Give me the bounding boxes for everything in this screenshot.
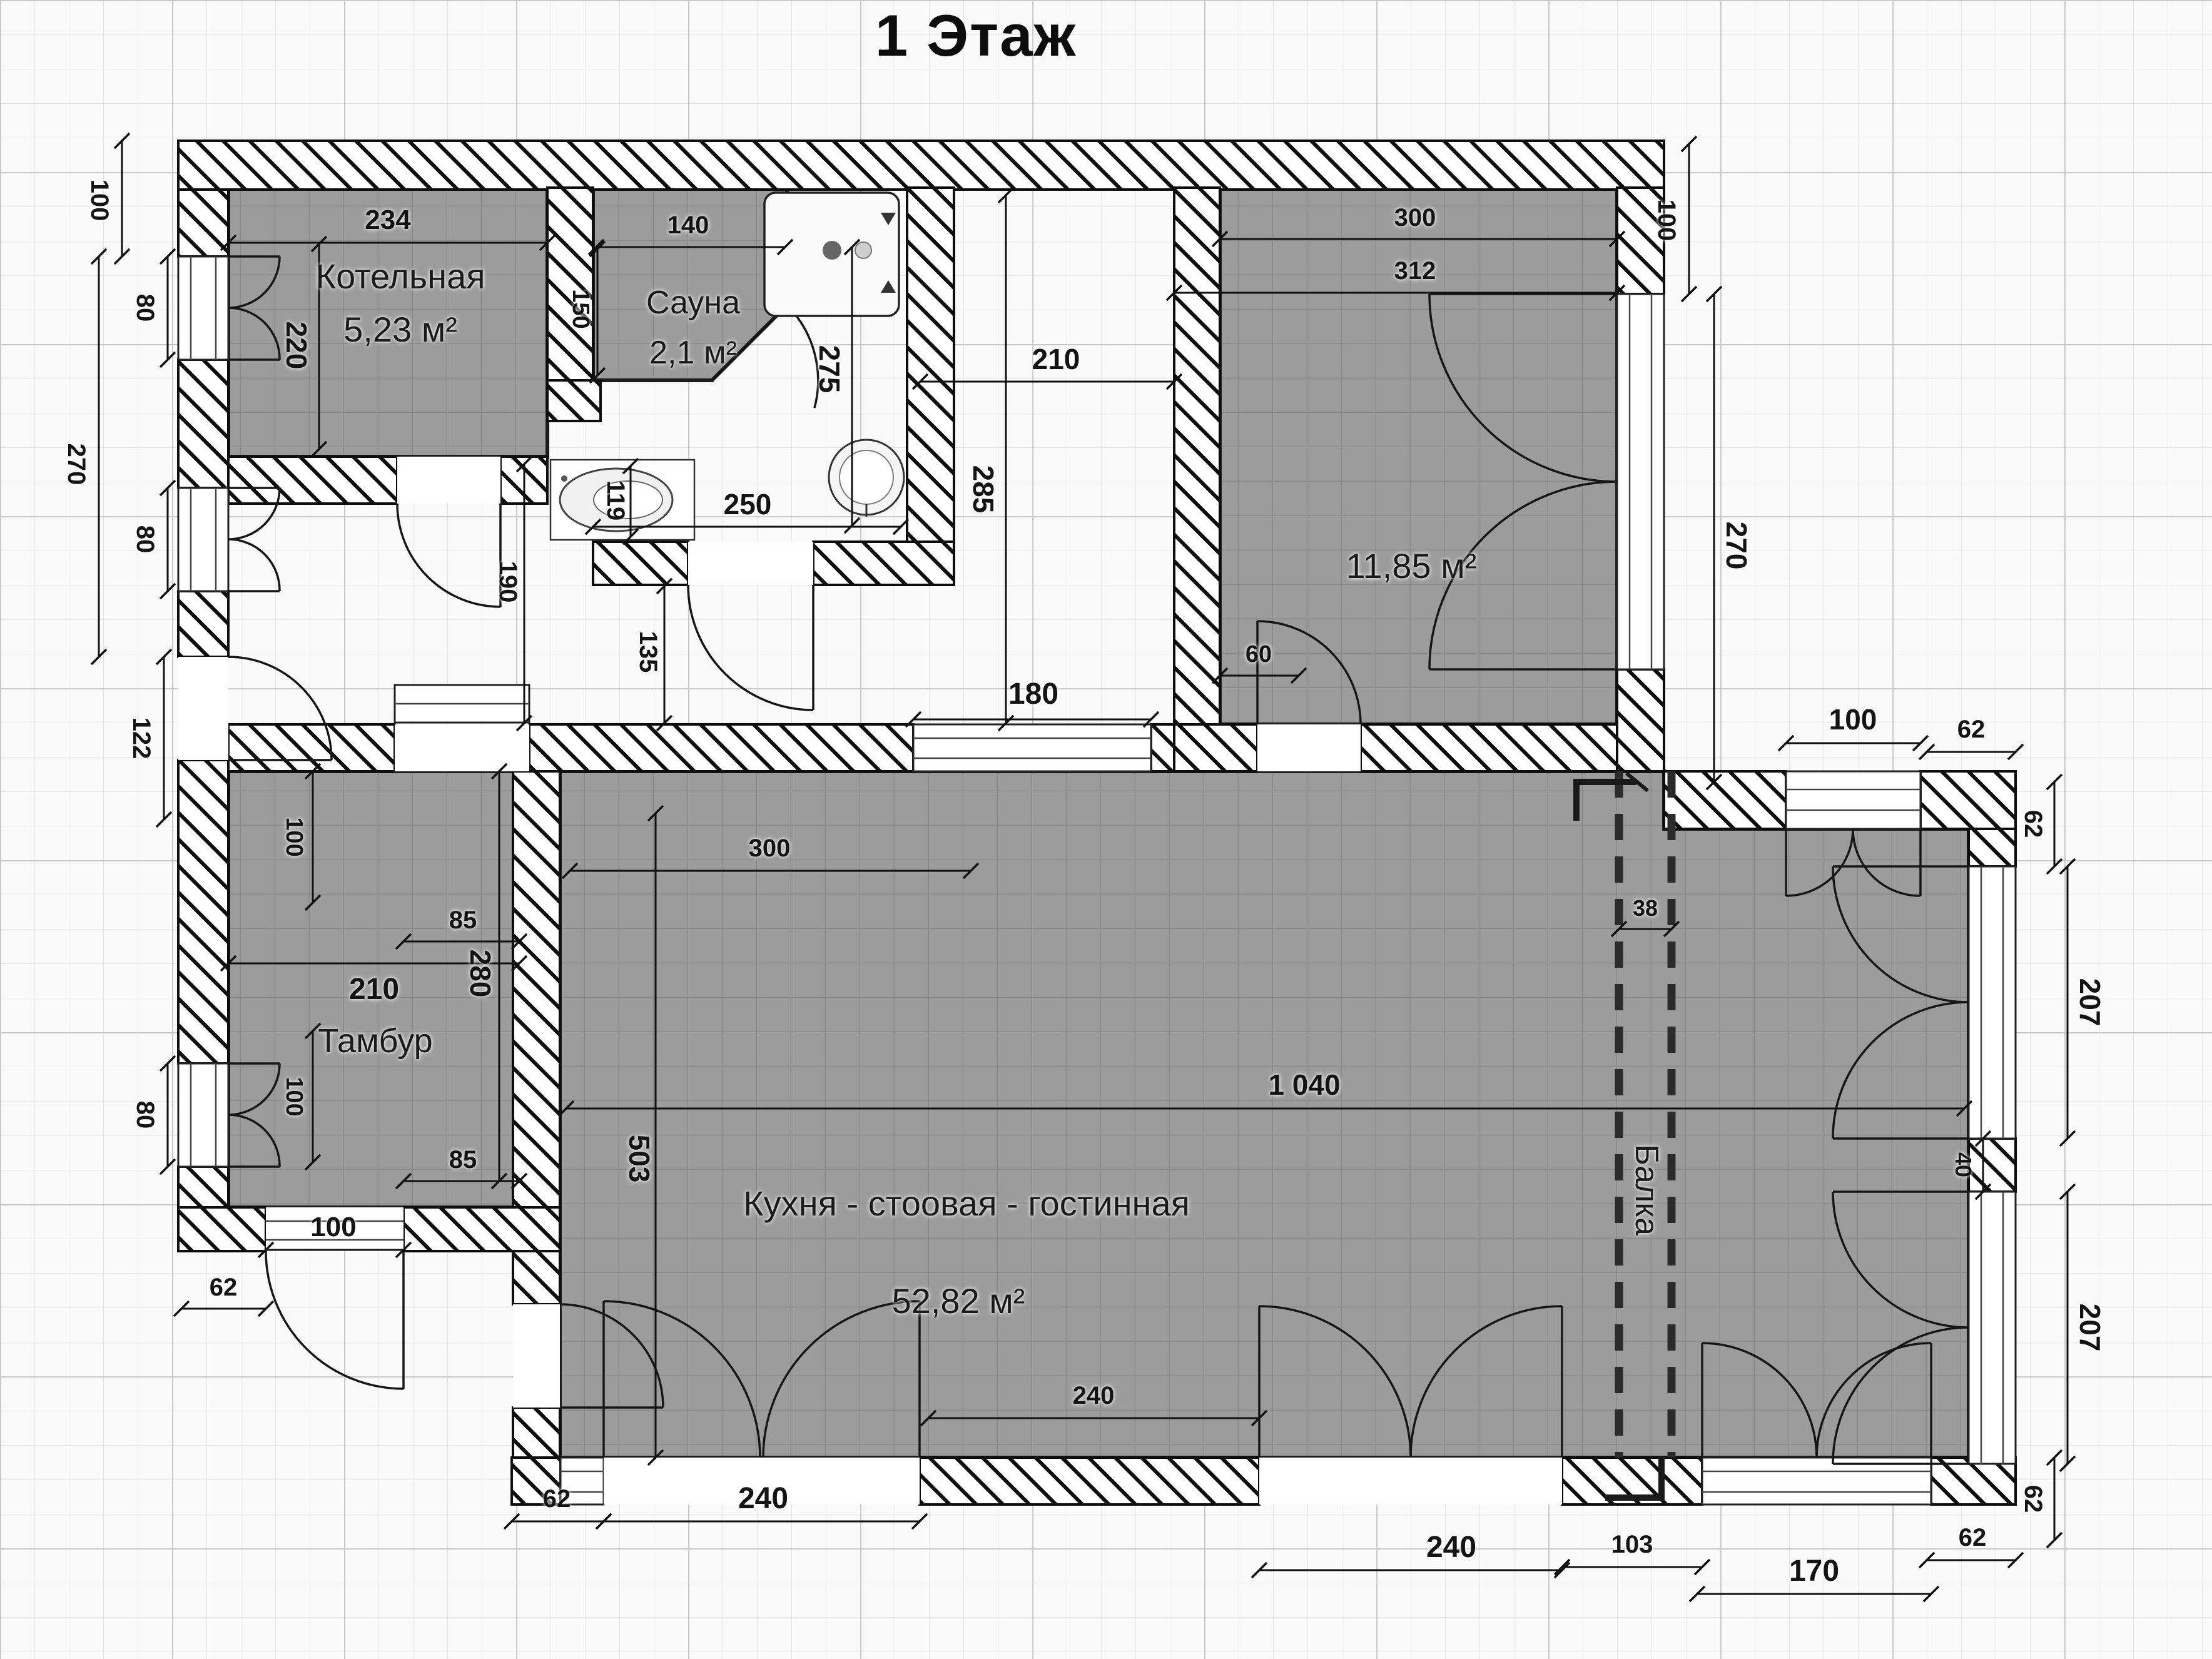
room-kitchen-living (560, 771, 1969, 1458)
window-left-b (178, 488, 228, 591)
opening-kitchen-left-door (513, 1304, 560, 1408)
door-opening-left-c (178, 657, 228, 760)
toilet (550, 460, 694, 540)
opening-kitchen-door-2 (1259, 1458, 1562, 1504)
window-left-a (178, 256, 228, 360)
sink-basin (829, 440, 904, 517)
opening-tambur-hall (395, 724, 529, 771)
opening-tambur-porch (266, 1207, 403, 1251)
floor-plan-drawing (0, 0, 2212, 1659)
room-tambur (228, 771, 519, 1207)
window-bottom-small (561, 1458, 604, 1504)
room-1185 (1220, 188, 1617, 724)
door-swing-bath (688, 585, 813, 710)
opening-boiler-door (397, 457, 500, 504)
window-ext-top (1786, 771, 1920, 829)
door-swing-boiler (397, 504, 500, 607)
room-boiler (228, 188, 547, 457)
opening-bath-door (688, 542, 813, 585)
opening-kitchen-door-1 (604, 1458, 920, 1504)
room-sauna (593, 188, 787, 380)
window-right-2 (1969, 1192, 2016, 1464)
window-right-upper (1617, 294, 1664, 669)
floor-plan: 234140250210180300312608521085100623001 … (0, 0, 2212, 1659)
shower-tray (764, 193, 899, 316)
window-hall-180 (913, 724, 1151, 771)
window-left-tambur (178, 1063, 228, 1167)
door-swing-porch (266, 1251, 403, 1389)
page-title: 1 Этаж (875, 2, 1077, 69)
window-right-1 (1969, 866, 2016, 1139)
opening-room1185-door (1257, 724, 1361, 771)
